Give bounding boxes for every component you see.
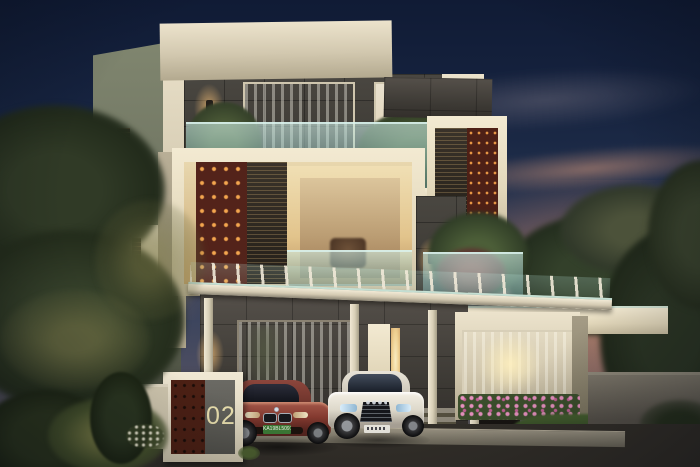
coupe-kidney-grille-2 [278, 413, 292, 423]
coupe-plate-text: KA19BL5091 [263, 426, 291, 432]
gate-pillar-grass-tuft [238, 446, 260, 460]
tiled-parapet [384, 77, 493, 119]
roof-parapet-band [160, 20, 393, 80]
sedan-license-plate [364, 425, 390, 433]
gate-pillar-concrete-panel: 02 [205, 380, 235, 454]
bay-window-glow [480, 334, 540, 394]
pergola-post-3 [428, 310, 437, 432]
sedan-windshield [348, 374, 402, 393]
sedan-plate-smudge [367, 427, 387, 430]
coupe-headlight-left [245, 412, 260, 418]
house-number: 02 [206, 404, 234, 429]
sedan-audi-rings [365, 400, 387, 405]
coupe-license-plate: KA19BL5091 [263, 425, 291, 434]
sedan-wheel-right [402, 415, 424, 437]
villa-rendering-scene: KA19BL5091 02 [0, 0, 700, 467]
sedan-grille [360, 402, 392, 422]
coupe-bmw-roundel [274, 407, 279, 412]
coupe-windshield [243, 384, 299, 404]
foreground-white-flowers [126, 424, 164, 448]
gate-pillar: 02 [163, 372, 243, 462]
sedan-headlight-left [340, 404, 357, 412]
coupe-kidney-grille [263, 413, 277, 423]
car-white-sedan [328, 371, 424, 445]
foreground-shrub-tall [90, 372, 152, 464]
coupe-wheel-right [307, 422, 329, 444]
gate-pillar-perforated-panel [171, 380, 205, 454]
sedan-wheel-left [334, 413, 360, 439]
sedan-headlight-right [396, 404, 411, 412]
coupe-headlight-right [293, 412, 308, 418]
